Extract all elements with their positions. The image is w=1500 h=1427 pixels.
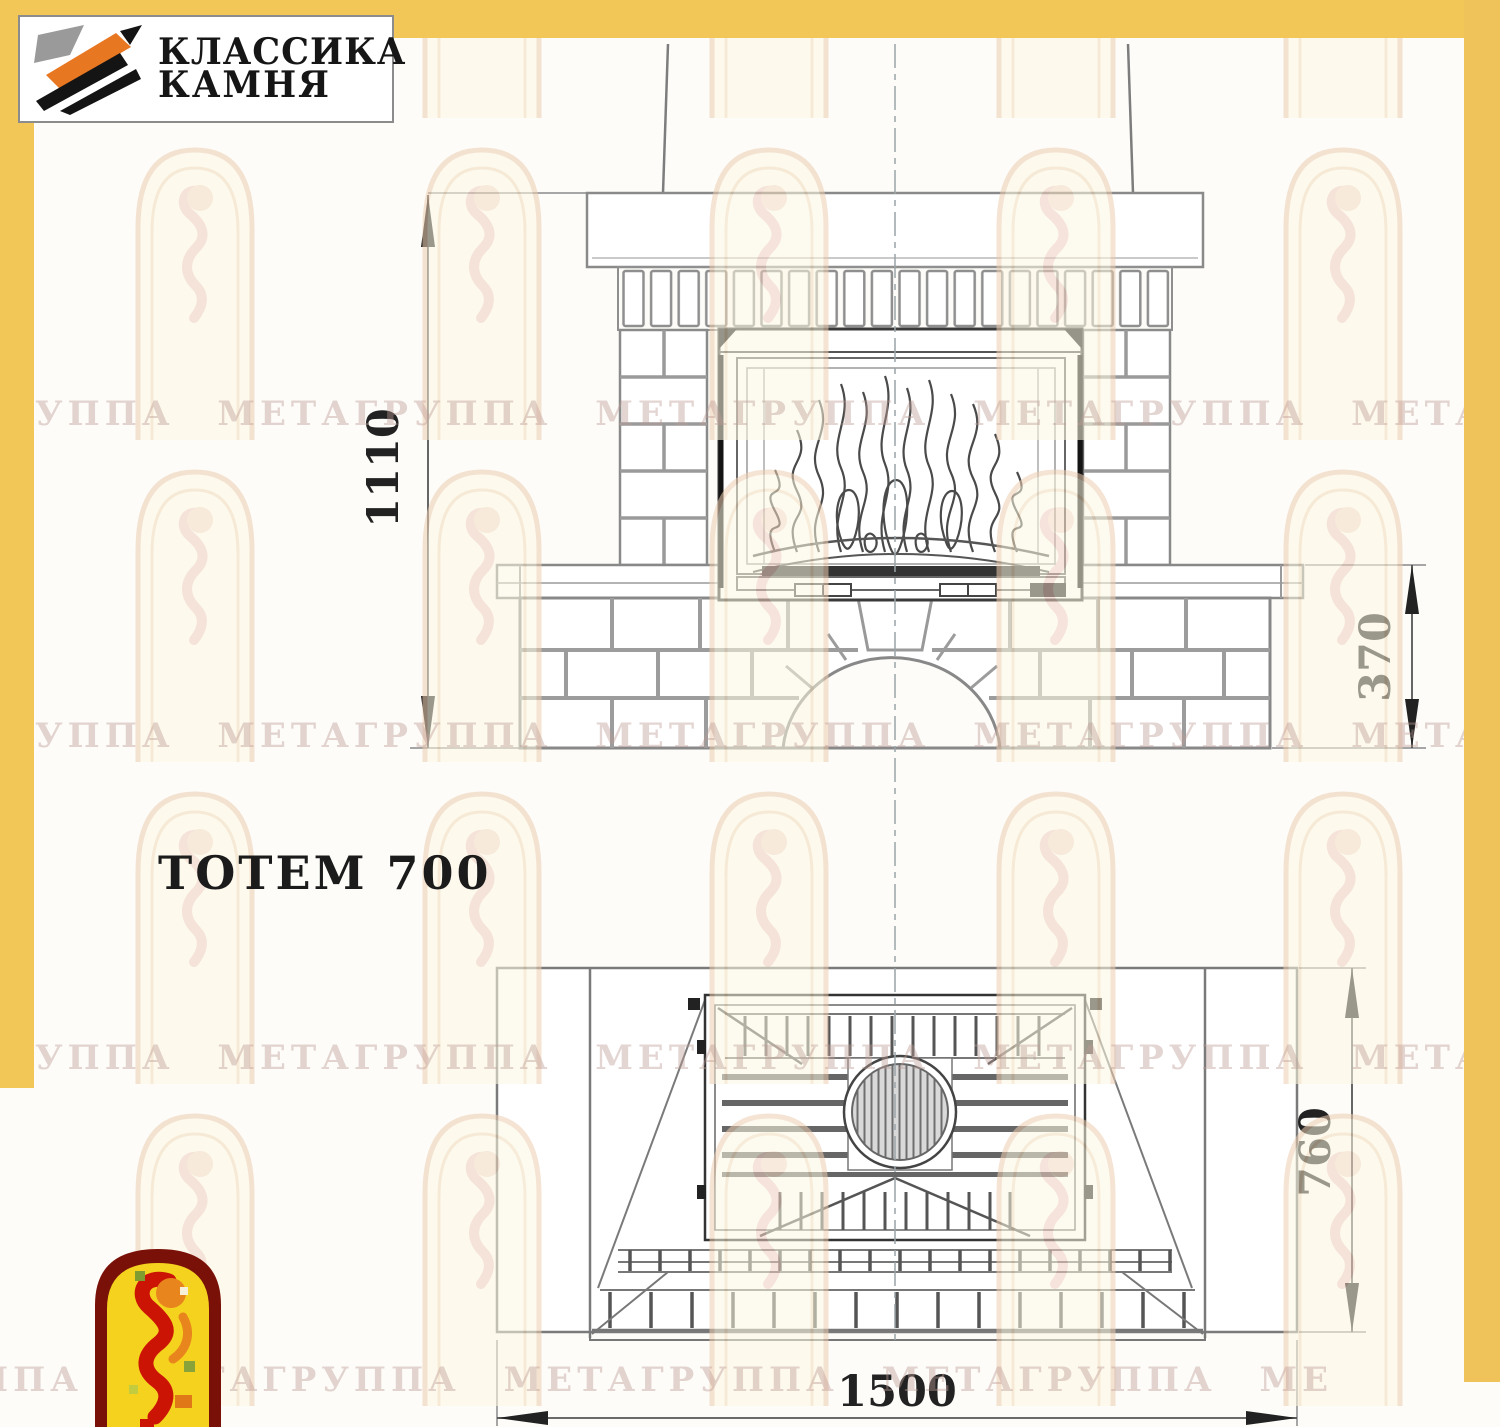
dimension-depth: 760 xyxy=(1291,968,1366,1332)
dim-label-1110: 1110 xyxy=(359,408,409,528)
logo-stripes-icon xyxy=(30,23,148,115)
fireplace-technical-drawing: 1110 370 760 1500 xyxy=(0,0,1500,1427)
catalog-page: 1110 370 760 1500 xyxy=(0,0,1500,1427)
border-left xyxy=(0,0,34,1088)
logo-line-2: КАМНЯ xyxy=(158,69,406,102)
flue-fan-circle xyxy=(844,1056,956,1168)
border-right xyxy=(1464,0,1500,1382)
dim-label-760: 760 xyxy=(1291,1107,1341,1197)
dimension-width: 1500 xyxy=(497,1340,1297,1426)
plan-view xyxy=(497,968,1297,1340)
dim-label-1500: 1500 xyxy=(837,1367,957,1417)
model-title: ТОТЕМ 700 xyxy=(158,846,492,900)
meta-group-emblem-icon xyxy=(85,1243,232,1427)
front-elevation-view xyxy=(497,44,1303,748)
logo-text: КЛАССИКА КАМНЯ xyxy=(158,36,406,103)
left-column xyxy=(620,330,707,565)
right-column xyxy=(1083,330,1170,565)
firebox-insert xyxy=(719,329,1082,600)
dim-label-370: 370 xyxy=(1351,612,1401,702)
chimney-lines xyxy=(663,44,1133,193)
company-logo: КЛАССИКА КАМНЯ xyxy=(18,15,394,123)
